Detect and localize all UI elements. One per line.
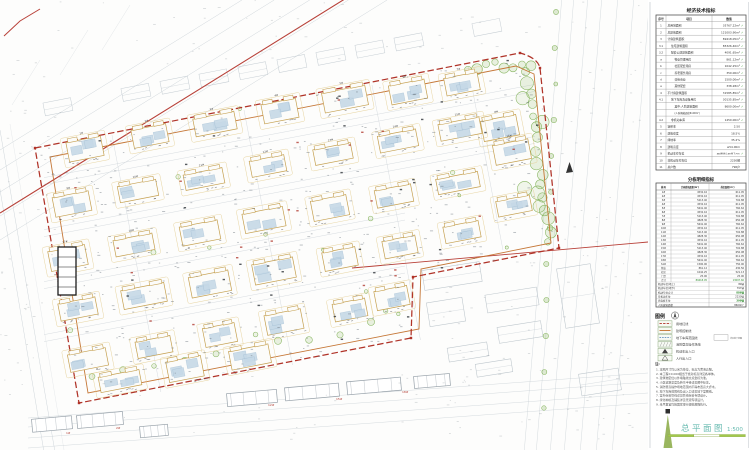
label: 1450.00m²: [725, 118, 740, 122]
building-number: 15#: [454, 112, 460, 117]
label: 其他配套: [675, 84, 686, 88]
label: 4532.16: [697, 191, 707, 194]
label: 338.28m²: [726, 84, 740, 88]
label: 861.12m²: [726, 57, 740, 61]
label: 5#: [662, 207, 666, 210]
label: 4828.30: [697, 235, 707, 238]
building-footprint: 9#: [46, 181, 98, 223]
building-footprint: [368, 279, 416, 316]
building-footprint: [376, 229, 424, 265]
label: 2230辆: [730, 158, 740, 162]
building-number: 2#: [144, 118, 149, 123]
label: 18.5%: [731, 131, 740, 135]
label: 社区: [661, 270, 666, 274]
label: 650.98: [736, 219, 745, 222]
label: 地下车库及设备用房: [671, 98, 696, 102]
label: 5213.40: [697, 247, 707, 250]
label: 机动车停车位: [668, 152, 685, 156]
highlighted-structure: [58, 247, 76, 295]
label: 15#: [661, 247, 666, 250]
label: 702.88: [736, 231, 745, 234]
note-line: 5. 消防登高操作场地范围内不得布置高大乔木。: [656, 384, 718, 389]
building-number: 4#: [274, 93, 279, 98]
building-footprint: 1#: [59, 127, 110, 168]
building-number: 3#: [209, 107, 214, 112]
label: 13#: [661, 239, 666, 242]
label: 611.05: [736, 255, 745, 258]
building-footprint: 13#: [306, 133, 359, 171]
label: 总建筑面积: [668, 30, 682, 34]
label: 4#: [662, 203, 666, 206]
label: 8600.00m²: [725, 104, 740, 108]
building-footprint: [304, 189, 355, 228]
building-number: 6#: [402, 74, 407, 79]
label: 12#: [661, 235, 666, 238]
label: 121003.90m²: [721, 30, 740, 34]
label: 总用地面积: [668, 24, 682, 28]
label: 1#: [662, 191, 666, 194]
building-number: 18#: [128, 228, 134, 233]
note-line: 3. 建筑物定位以外墙轴线交点坐标为准。: [656, 375, 709, 380]
label: 702.88: [736, 215, 745, 218]
legend-title: 图例: [655, 313, 665, 320]
label: 社区配套用房: [675, 64, 692, 68]
label: 399辆: [736, 299, 744, 303]
note-line: 8. 绿化种植及铺装详见景观专项设计。: [656, 397, 706, 402]
label: 1042.25m²: [725, 64, 740, 68]
building-footprint: 5#: [315, 76, 374, 119]
check-mark: ✓: [741, 44, 744, 48]
building-footprint: [326, 292, 374, 328]
label: 4828.30: [697, 251, 707, 254]
label: 18#: [661, 259, 666, 262]
label: 5641.40: [697, 207, 707, 210]
label: 非机动车停车位: [668, 158, 688, 162]
label: 8600m²: [734, 303, 744, 307]
label: 611.05: [736, 191, 745, 194]
label: 4532.16: [697, 211, 707, 214]
existing-building-label: 2#: [116, 426, 121, 430]
note-line: 9. 未尽事宜均按国家现行规范规程执行。: [656, 401, 709, 406]
detail-table-title: 分栋明细指标: [688, 176, 715, 183]
check-mark: ✓: [741, 84, 744, 88]
label: 合计: [661, 278, 666, 282]
label: 1042.25: [697, 271, 707, 274]
label: 9#: [662, 223, 666, 226]
label: 25.00: [700, 275, 707, 278]
label: 5213.40: [697, 231, 707, 234]
table-row: (人防掩蔽面积6100m²): [675, 111, 701, 115]
label: 2.50: [734, 125, 740, 129]
building-footprint: [115, 277, 173, 316]
label: 650.98: [736, 235, 745, 238]
label: 611.05: [736, 239, 745, 242]
building-number: 8#: [494, 109, 499, 114]
label: 650.98: [736, 251, 745, 254]
label: 5213.40: [697, 199, 707, 202]
building-number: 12#: [262, 149, 268, 154]
label: 750.00: [736, 263, 745, 266]
north-marker-top: [666, 409, 671, 414]
building-footprint: [437, 214, 487, 249]
label: 容积率: [668, 125, 677, 129]
label: 配套公建建筑面积: [671, 51, 694, 55]
label: 1500.00: [697, 263, 707, 266]
label: 人防建筑面积: [658, 303, 674, 307]
label: 机动车出入口: [676, 349, 695, 354]
building-footprint: [316, 241, 364, 278]
label: 建筑高度: [668, 145, 679, 149]
label: 总户数: [668, 165, 677, 169]
existing-building-label: 18#: [402, 390, 409, 394]
label: 760.62: [736, 207, 745, 210]
note-line: 6. 地下车库范围线及出入口详见地下室图纸。: [656, 388, 715, 393]
label: 5641.40: [697, 243, 707, 246]
note-line: 1. 本图尺寸均以米为单位，标高为黄海高程。: [656, 367, 715, 372]
label: 30135.85m²: [723, 98, 740, 102]
label: 2#: [662, 195, 666, 198]
check-mark: ✓: [741, 24, 744, 28]
building-footprint: [246, 251, 302, 291]
label: 2230辆: [735, 294, 744, 298]
existing-building-label: 15#: [336, 397, 343, 401]
check-mark: ✓: [741, 30, 744, 34]
building-footprint: 14#: [371, 120, 425, 159]
legend-item: 机动车出入口: [658, 348, 695, 354]
building-footprint: 18#: [106, 224, 160, 263]
check-mark: ✓: [741, 57, 744, 61]
right-panel: 经济技术指标 序号项目数值1总用地面积35767.22m²✓2总建筑面积1210…: [648, 0, 750, 450]
check-mark: ✓: [741, 71, 744, 75]
label: 35.2%: [731, 138, 740, 142]
label: 计容建筑面积(m²): [681, 185, 699, 189]
label: 非机动车库: [671, 118, 685, 122]
label: 4828.30: [697, 219, 707, 222]
building-footprint: 12#: [243, 145, 293, 183]
label: 796户: [732, 165, 740, 169]
label: 3.1: [659, 44, 663, 48]
label: 门卫: [661, 274, 666, 278]
label: 养老服务用房: [675, 71, 692, 75]
economic-table-title: 经济技术指标: [687, 7, 716, 14]
note-line: 2. 本工程±0.000相当于绝对标高详见各单体。: [656, 371, 717, 376]
label: 430.56: [736, 267, 745, 270]
label: 建筑控制线: [676, 328, 691, 333]
label: 5641.40: [697, 223, 707, 226]
label: 25.00: [737, 275, 744, 278]
label: 11: [659, 165, 663, 169]
label: 机动车位合计: [658, 290, 674, 294]
context-surroundings: 12#15#18#1#2#: [0, 0, 650, 450]
label: 760.62: [736, 243, 745, 246]
label: 611.05: [736, 211, 745, 214]
building-number: 5#: [339, 81, 344, 86]
label: 4532.16: [697, 239, 707, 242]
label: 非机动车位: [658, 294, 671, 298]
check-mark: ✓: [741, 104, 744, 108]
label: 797辆: [737, 286, 745, 290]
existing-building-label: 1#: [66, 431, 71, 435]
building-footprint: [223, 338, 278, 376]
label: 611.05: [736, 203, 745, 206]
label: 物业管理用房: [675, 57, 692, 61]
label: 702.88: [736, 247, 745, 250]
check-mark: ✓: [741, 118, 744, 122]
label: ≤54.00m: [727, 145, 740, 149]
check-mark: ✓: [741, 91, 744, 95]
label: 760.62: [736, 223, 745, 226]
label: 350.00m²: [726, 71, 740, 75]
building-number: 10#: [132, 174, 138, 179]
label: 31585.85m²: [723, 91, 740, 95]
label: 8#: [662, 219, 666, 222]
building-number: 13#: [327, 137, 333, 142]
label: 机动车位(地上): [658, 282, 675, 286]
building-footprint: [173, 214, 226, 252]
label: 521.13: [736, 271, 745, 274]
label: 地下车库范围线: [676, 335, 698, 340]
building-footprints: 1#2#3#4#5#6#7#8#9#10#11#12#13#14#15#16#1…: [41, 63, 538, 399]
label: 11#: [661, 231, 666, 234]
label: 6#: [662, 211, 666, 214]
label: 89418.05: [696, 279, 708, 282]
label: 消防登高操作场地: [676, 342, 701, 347]
site-plan-canvas: 12#15#18#1#2# 1#2#3#4#5#6#7#8#9#10#11#12…: [0, 0, 750, 450]
label: 住宅建筑面积: [671, 44, 688, 48]
label: 计容建筑面积: [668, 37, 685, 41]
label: 861.12: [699, 267, 708, 270]
label: 85326.40m²: [723, 44, 740, 48]
label: 绿地率: [668, 138, 677, 142]
drawing-title: 总平面图: [681, 423, 725, 434]
note-line: 7. 室外综合管线详见管线综合专项设计。: [656, 393, 709, 398]
label: 3#: [662, 199, 666, 202]
label: 611.05: [736, 227, 745, 230]
label: 89418.05m²: [723, 37, 740, 41]
label: 4.1: [659, 98, 663, 102]
label: 1500.00m²: [725, 77, 740, 81]
building-number: 9#: [66, 186, 71, 191]
label: 886辆: [736, 290, 744, 294]
label: 702.88: [736, 199, 745, 202]
label: 4532.16: [697, 255, 707, 258]
check-mark: ✓: [741, 37, 744, 41]
label: 人行出入口: [676, 356, 691, 361]
building-footprint: 6#: [382, 70, 434, 111]
label: 沿街商业: [675, 77, 686, 81]
check-mark: ✓: [741, 152, 744, 156]
label: 4532.16: [697, 195, 707, 198]
note-line: 4. 小区道路宽度及转弯半径详见图中标注。: [656, 380, 712, 385]
label: 4.2: [659, 118, 663, 122]
label: 4532.16: [697, 203, 707, 206]
label: 611.05: [736, 195, 745, 198]
label: 充电桩车位: [658, 299, 671, 303]
building-number: 1#: [79, 131, 84, 136]
label: 35767.22m²: [723, 24, 740, 28]
building-footprint: 15#: [431, 107, 488, 147]
existing-building-label: 12#: [268, 403, 275, 407]
label: 14#: [661, 243, 666, 246]
label: 5213.40: [697, 215, 707, 218]
label: 16#: [661, 251, 666, 254]
label: 3.2: [659, 51, 663, 55]
label: 其中:人防建筑面积: [675, 104, 699, 108]
label: 17#: [661, 255, 666, 258]
check-mark: ✓: [741, 51, 744, 55]
building-footprint: [258, 303, 310, 341]
label: S1#: [661, 263, 666, 266]
label: (人防掩蔽面积6100m²): [675, 111, 701, 115]
check-mark: ✓: [741, 77, 744, 81]
label: 4532.16: [697, 227, 707, 230]
label: 项目: [686, 17, 692, 21]
building-footprint: [160, 350, 210, 389]
label: 4091.65m²: [725, 51, 740, 55]
label: 机动车位(地下): [658, 286, 675, 290]
drawing-scale: 1:500: [727, 427, 743, 433]
legend-item: 消防登高操作场地: [658, 342, 701, 348]
building-footprint: [368, 178, 419, 214]
label: 基底面积(m²): [720, 185, 735, 189]
label: 序号: [657, 17, 664, 21]
label: 物业: [661, 266, 666, 270]
drawing-sheet: 12#15#18#1#2# 1#2#3#4#5#6#7#8#9#10#11#12…: [0, 0, 750, 450]
building-footprint: 10#: [111, 170, 165, 209]
building-number: 11#: [198, 162, 204, 167]
plan-north-arrow: [566, 162, 573, 173]
label: 10: [659, 158, 663, 162]
building-number: 14#: [392, 124, 398, 129]
label: 760.62: [736, 259, 745, 262]
building-footprint: 4#: [254, 89, 305, 130]
label: 栋号: [660, 185, 667, 189]
label: 用地红线: [676, 321, 688, 326]
label: 数值: [725, 17, 732, 21]
check-mark: ✓: [741, 64, 744, 68]
notes-heading: 注:: [655, 361, 660, 366]
label: 89辆: [738, 282, 744, 286]
building-footprint: [52, 291, 104, 327]
label: 10#: [661, 227, 666, 230]
label: 不计容建筑面积: [668, 91, 688, 95]
label: 13097.60: [733, 279, 745, 282]
label: 建筑密度: [668, 131, 679, 135]
building-number: 7#: [456, 67, 461, 72]
label: 5641.40: [697, 259, 707, 262]
label: 7#: [662, 215, 666, 218]
check-mark: ✓: [741, 98, 744, 102]
